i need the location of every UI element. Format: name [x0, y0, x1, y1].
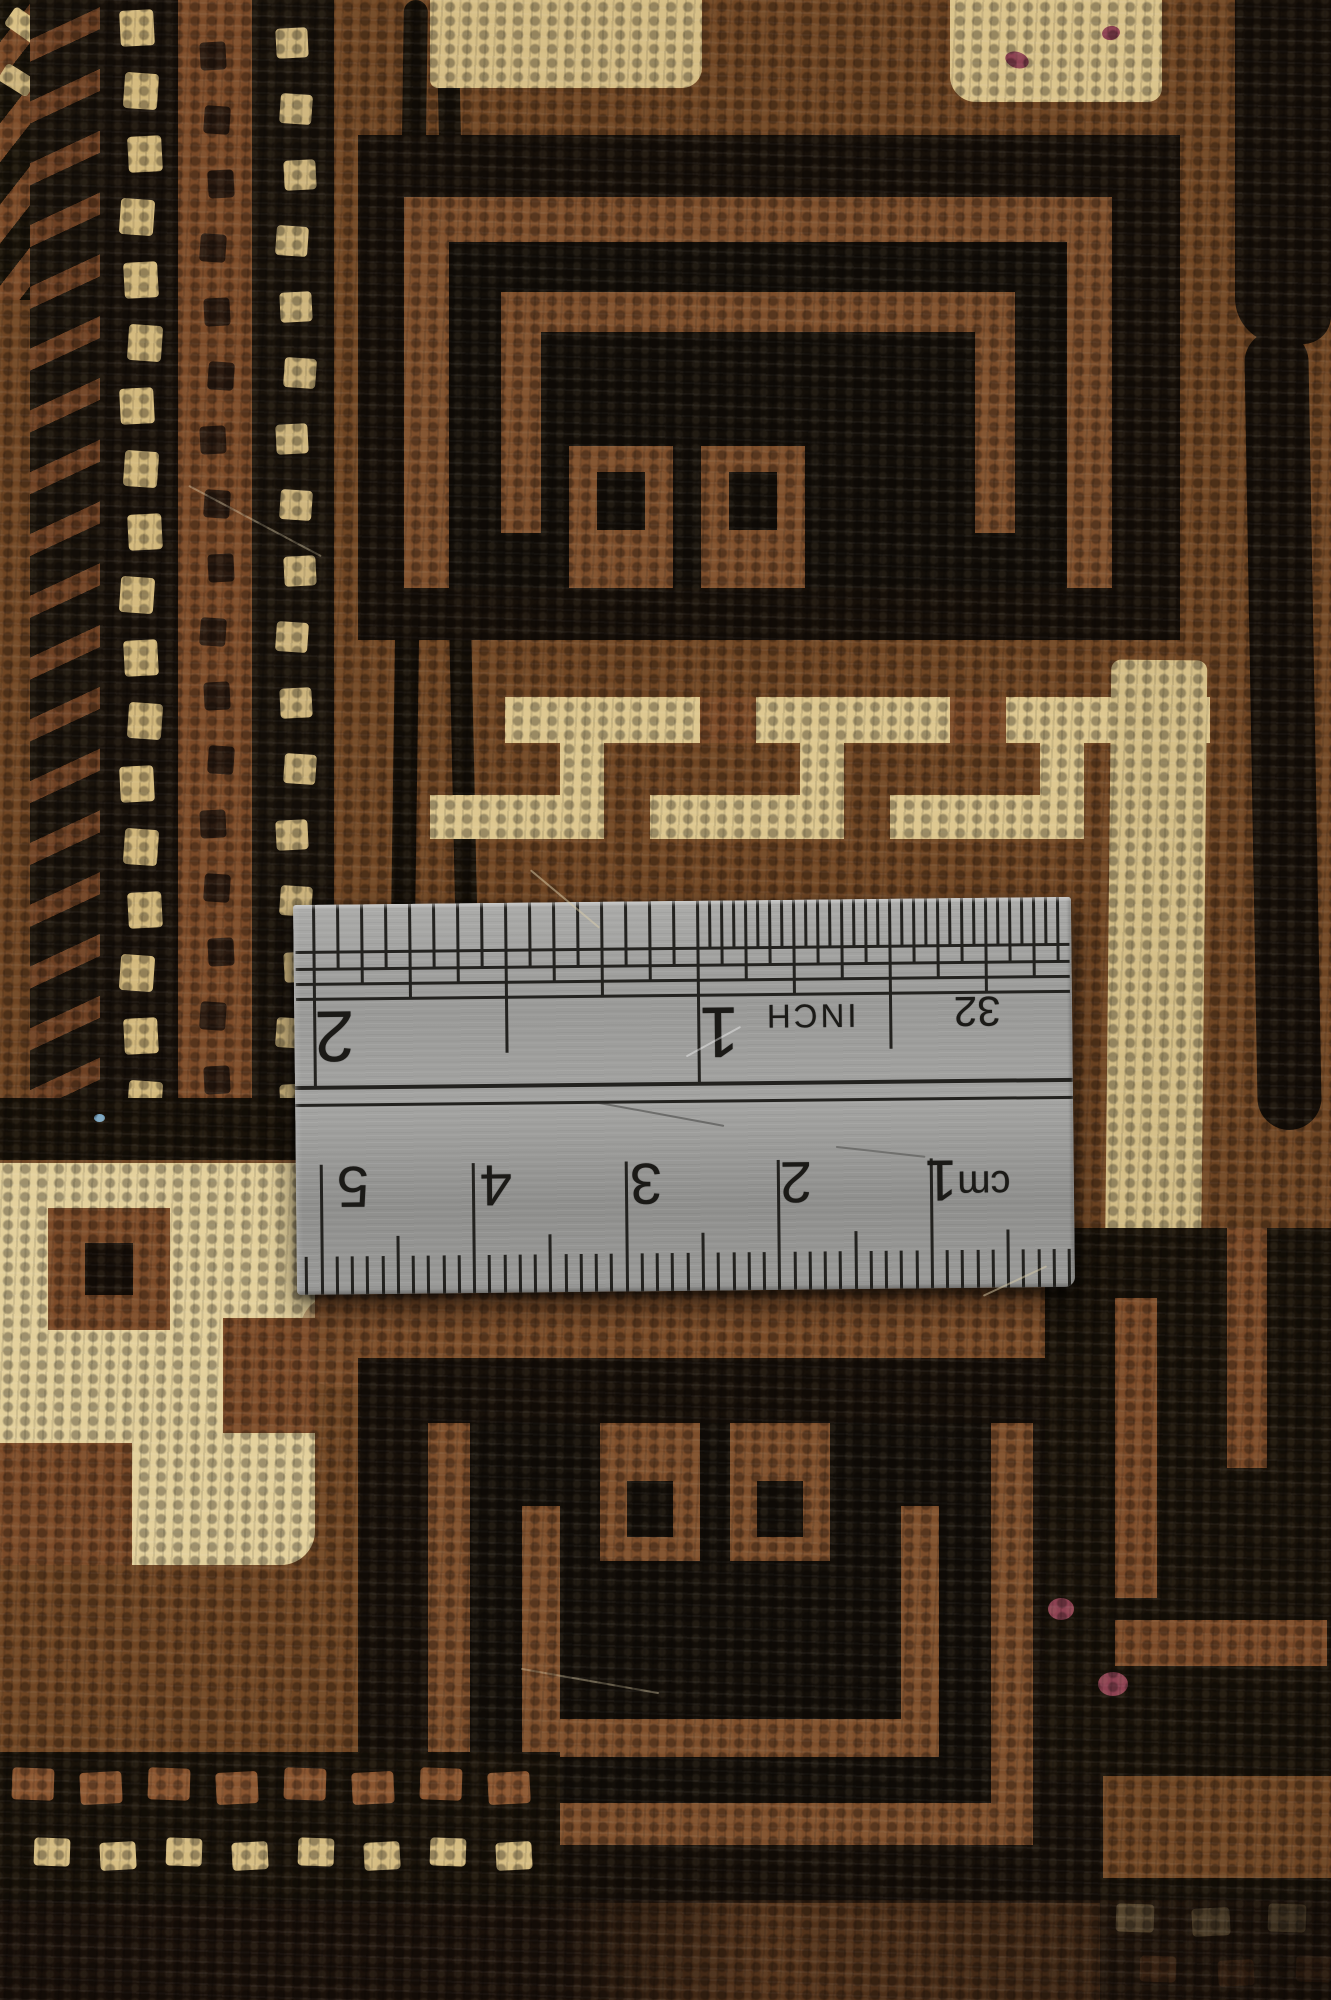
border-dot	[199, 425, 226, 454]
border-dot	[199, 617, 227, 647]
border-dot	[127, 891, 163, 929]
meander-gap	[700, 697, 756, 743]
border-dot	[207, 361, 235, 391]
border-dot	[279, 291, 313, 323]
meander-bar	[650, 795, 800, 839]
bottom-dotted-band	[0, 1752, 560, 1904]
border-dash	[11, 1767, 54, 1800]
border-dot	[283, 159, 317, 191]
bottom-dark-strip	[0, 1900, 1331, 2000]
border-dash	[495, 1841, 532, 1871]
border-dot	[123, 828, 159, 866]
fret-square-core	[470, 1423, 991, 1803]
fret-hook	[569, 446, 673, 588]
border-dash	[147, 1767, 190, 1800]
fret-hook-eye	[627, 1481, 673, 1537]
border-dot	[127, 702, 163, 740]
border-dot	[275, 27, 309, 59]
border-dot	[275, 423, 309, 455]
guard-stripe-column	[30, 0, 102, 1152]
fret-hook	[600, 1423, 700, 1561]
border-dot	[203, 297, 230, 326]
border-dot	[119, 954, 155, 992]
fret-hook-eye	[597, 472, 645, 530]
steel-ruler: 2 1 INCH 32 5 4 3 2 1 cm	[293, 897, 1075, 1295]
meander-bar	[430, 795, 560, 839]
border-dot	[127, 324, 163, 362]
border-dash	[215, 1771, 259, 1805]
border-dash	[419, 1767, 462, 1800]
border-dot	[199, 41, 226, 70]
cream-key-motif	[0, 1163, 315, 1565]
left-black-band	[0, 1098, 334, 1160]
border-dot	[279, 687, 313, 719]
border-dot	[279, 93, 313, 125]
border-dot	[275, 621, 309, 653]
border-dash	[79, 1771, 123, 1805]
top-right-cream-patch	[950, 0, 1162, 102]
border-dot	[283, 555, 317, 587]
top-fret-square	[358, 135, 1180, 640]
border-dash	[298, 1837, 335, 1866]
maroon-fleck	[1098, 1672, 1128, 1696]
border-dot	[127, 135, 163, 173]
border-dot	[203, 873, 231, 903]
key-center-dot	[85, 1243, 133, 1295]
fret-square-core	[449, 242, 1067, 588]
border-dot	[199, 1001, 227, 1031]
fret-hook	[701, 446, 805, 588]
border-dot	[203, 681, 230, 710]
border-dash	[351, 1771, 395, 1805]
border-dot	[275, 225, 309, 257]
meander-gap	[950, 697, 1006, 743]
border-dash	[166, 1837, 203, 1866]
border-dot	[123, 261, 159, 299]
border-dot	[283, 357, 317, 389]
border-dot	[207, 937, 234, 966]
fret-hook-eye	[729, 472, 777, 530]
fret-hook-eye	[757, 1481, 803, 1537]
border-dash	[34, 1837, 71, 1866]
border-dot	[207, 745, 235, 775]
border-dot	[123, 450, 159, 488]
border-dot	[123, 1017, 159, 1055]
border-dot	[207, 553, 234, 582]
border-dot	[123, 639, 159, 677]
border-dot	[119, 198, 155, 236]
right-cream-stripe	[1105, 660, 1208, 1291]
border-dot	[119, 576, 155, 614]
fret-bar	[1115, 1298, 1157, 1598]
border-dot	[203, 105, 231, 135]
border-dot	[203, 1065, 230, 1094]
border-dot	[123, 72, 159, 110]
meander-drop	[1040, 742, 1084, 839]
border-dot	[119, 765, 155, 803]
border-dot	[275, 819, 309, 851]
border-dot	[127, 513, 163, 551]
key-notch	[0, 1443, 132, 1565]
fret-bar	[1115, 1620, 1327, 1666]
maroon-fleck	[1048, 1598, 1074, 1620]
meander-bar	[890, 795, 1040, 839]
dotted-border-column	[100, 0, 178, 1152]
rug-closeup-photo: 2 1 INCH 32 5 4 3 2 1 cm	[0, 0, 1331, 2000]
right-black-corner	[1235, 0, 1331, 344]
border-dash	[231, 1841, 268, 1871]
border-dash	[487, 1771, 531, 1805]
key-inner-square	[48, 1208, 170, 1330]
meander-bar	[505, 697, 1210, 743]
metal-sheen	[293, 897, 1075, 1295]
top-cream-band	[430, 0, 702, 88]
border-dot	[207, 169, 234, 198]
border-dot	[119, 9, 155, 47]
right-black-stripe	[1244, 330, 1322, 1131]
brown-dot-column	[178, 0, 252, 1152]
fret-bar	[1227, 1228, 1267, 1468]
meander-drop	[560, 742, 604, 839]
border-dot	[279, 489, 313, 521]
border-dot	[119, 387, 155, 425]
border-dash	[283, 1767, 326, 1800]
border-dot	[199, 809, 226, 838]
meander-drop	[800, 742, 844, 839]
fret-hook	[730, 1423, 830, 1561]
border-dot	[283, 753, 317, 785]
right-black-field	[1045, 1228, 1331, 1776]
border-dot	[199, 233, 227, 263]
border-dash	[430, 1837, 467, 1866]
border-dash	[99, 1841, 136, 1871]
blue-fiber-fleck	[94, 1114, 105, 1122]
border-dash	[363, 1841, 400, 1871]
fret-square-ring	[404, 197, 1112, 588]
